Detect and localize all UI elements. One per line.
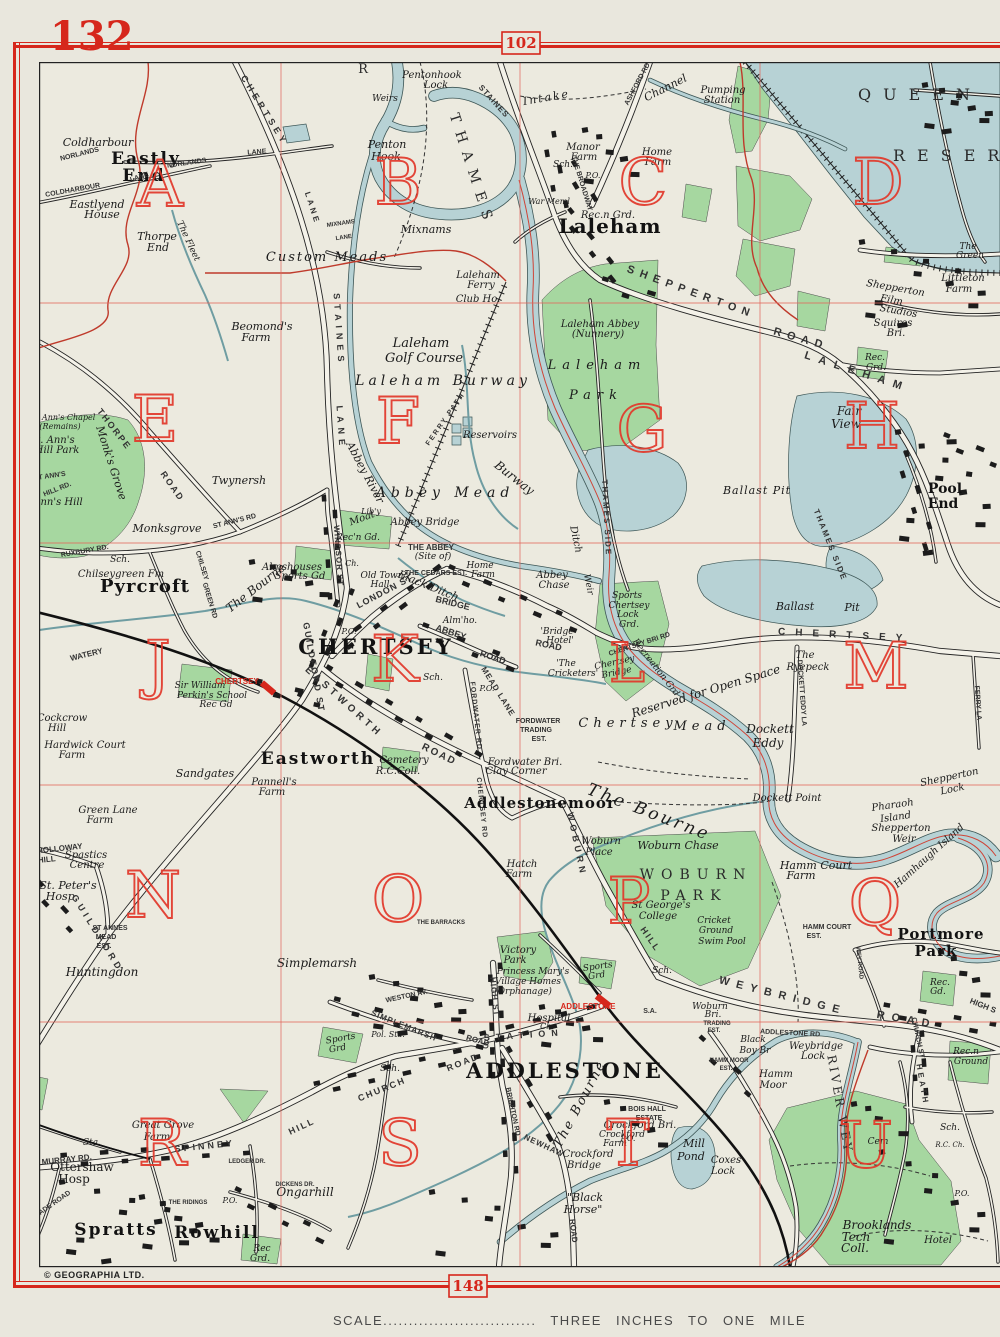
building <box>851 1101 858 1107</box>
building <box>249 559 256 565</box>
grid-letter-t: T <box>607 1107 650 1181</box>
map-label: Pool <box>928 481 962 497</box>
building <box>514 1166 519 1174</box>
lake <box>452 424 461 433</box>
map-label: Mixnams <box>400 223 452 236</box>
map-label: Sandgates <box>176 767 235 780</box>
map-label: TRADING <box>520 727 552 734</box>
building <box>891 249 897 254</box>
map-label: Chase <box>538 580 569 591</box>
building <box>924 1188 932 1194</box>
building <box>979 118 989 123</box>
map-label: Farm <box>258 787 285 798</box>
map-label: Pol. Sta. <box>370 1030 405 1039</box>
building <box>494 1206 500 1211</box>
building <box>980 992 990 997</box>
building <box>906 518 914 523</box>
grid-letter-q: Q <box>849 867 901 941</box>
map-label: Shepperton <box>871 823 930 834</box>
map-label: Hill <box>47 723 66 734</box>
map-label: Coll. <box>841 1241 869 1255</box>
map-label: Weirs <box>372 94 398 104</box>
map-label: Farm <box>86 815 113 826</box>
map-label: P.O. <box>222 1196 238 1205</box>
map-label: Hall <box>370 580 390 590</box>
map-label: HAMM COURT <box>803 924 852 931</box>
map-label: R.C. Ch. <box>934 1141 964 1149</box>
map-label: Huntingdon <box>65 965 139 979</box>
map-label: Park <box>915 942 958 960</box>
map-canvas: 132 102 148 SCALE.......................… <box>0 0 1000 1337</box>
map-label: (Site of) <box>415 551 452 562</box>
map-label: LEDGER DR. <box>228 1159 265 1165</box>
map-label: Woburn <box>581 836 621 847</box>
map-label: Cricketers' <box>548 669 598 679</box>
map-label: Monksgrove <box>132 522 202 535</box>
map-label: Black <box>739 1035 765 1045</box>
map-label: Woburn Chase <box>637 839 719 852</box>
map-label: HILL <box>37 854 56 865</box>
map-label: Sch. <box>652 966 672 976</box>
map-label: Hamm <box>758 1069 793 1080</box>
building <box>596 134 602 139</box>
map-label: Swim Pool <box>698 937 746 947</box>
map-label: Farm <box>58 750 85 761</box>
map-label: Sch. <box>423 673 443 683</box>
map-label: Dockett Point <box>752 793 823 804</box>
map-label: R.C.Coll. <box>375 766 420 777</box>
map-label: Pit <box>843 601 860 614</box>
map-label: Spratts <box>74 1220 157 1240</box>
map-label: Ground <box>699 926 734 936</box>
map-label: Eddy <box>752 736 784 750</box>
building <box>932 1173 938 1178</box>
map-label: Ryepeck <box>786 662 830 673</box>
map-label: Lock <box>710 1166 735 1177</box>
map-label: Sch. <box>380 1064 400 1074</box>
svg-text:102: 102 <box>505 34 536 52</box>
map-label: Bri. <box>704 1010 722 1020</box>
map-label: Village Homes <box>495 977 561 987</box>
grid-letter-a: A <box>136 148 184 222</box>
building <box>202 1153 210 1158</box>
building <box>978 291 986 296</box>
map-label: Littleton <box>940 273 984 284</box>
map-label: Horse" <box>563 1203 603 1216</box>
map-label: Sports Gd <box>275 571 326 582</box>
map-label: EST. <box>720 1066 733 1072</box>
map-label: Ch. <box>345 559 359 568</box>
building <box>966 471 973 477</box>
map-label: THE ABBEY <box>408 543 455 552</box>
map-label: Chertsey <box>578 716 677 731</box>
map-label: Simplemarsh <box>277 956 357 970</box>
map-label: Bri. <box>886 328 906 339</box>
map-label: Station <box>704 95 741 106</box>
map-label: Sch. <box>110 555 130 565</box>
building <box>485 1216 493 1222</box>
map-label: MEAD <box>96 934 117 941</box>
lake <box>452 436 461 445</box>
map-label: Sta. <box>83 1138 101 1148</box>
map-label: S.A. <box>643 1008 657 1015</box>
map-label: Farm <box>570 152 597 163</box>
building <box>905 1161 911 1166</box>
grid-ref-bottom: 148 <box>449 1275 487 1297</box>
map-label: Laleham <box>547 358 647 373</box>
map-label: End <box>928 496 959 512</box>
map-label: Farm <box>505 869 532 880</box>
grid-letter-m: M <box>843 630 909 704</box>
building <box>582 127 589 133</box>
building <box>983 504 991 509</box>
map-label: DICKENS DR. <box>275 1182 314 1188</box>
map-label: Mill <box>682 1137 705 1150</box>
map-label: Grd. <box>619 620 639 630</box>
map-label: Princess Mary's <box>496 967 570 977</box>
copyright: © GEOGRAPHIA LTD. <box>44 1270 145 1280</box>
building <box>859 239 866 245</box>
map-label: P.O. <box>341 627 357 636</box>
map-label: Bridge <box>566 1160 601 1171</box>
building <box>923 259 929 264</box>
map-label: ADDLESTONE <box>465 1058 664 1083</box>
map-label: Clay Corner <box>485 766 547 777</box>
building <box>969 1227 979 1232</box>
map-label: ADDLESTONE <box>561 1002 617 1011</box>
map-label: EST. <box>97 943 112 950</box>
map-label: LANE <box>247 148 267 156</box>
map-label: House <box>83 208 120 221</box>
map-label: Lock <box>423 80 448 91</box>
map-label: Reservoirs <box>462 430 517 441</box>
map-label: Rec <box>252 1244 270 1254</box>
map-label: (Remains) <box>39 422 80 431</box>
map-label: Hotel <box>923 1235 952 1246</box>
map-layers: ColdharbourEastlyEndEastlyendHouseThorpe… <box>20 62 1000 1267</box>
map-label: (Orphanage) <box>494 986 552 997</box>
map-label: HAMM MOOR <box>710 1058 750 1064</box>
map-label: Lock <box>616 610 639 620</box>
map-label: Lib'y <box>360 507 381 516</box>
map-label: Sports <box>612 591 642 601</box>
building <box>913 271 921 277</box>
grid-letter-l: L <box>609 632 645 695</box>
map-label: Mead <box>672 719 730 734</box>
grid-letter-d: D <box>852 146 903 220</box>
map-label: Cricket <box>697 916 731 926</box>
grid-letter-p: P <box>607 865 650 939</box>
building <box>369 974 376 980</box>
building <box>490 1047 495 1055</box>
building <box>919 443 925 448</box>
map-label: CHERTSEY <box>215 677 259 686</box>
grid-letter-k: K <box>371 623 420 697</box>
building <box>429 1189 436 1195</box>
page-number: 132 <box>50 13 134 60</box>
map-label: Grd. <box>250 1254 270 1264</box>
map-label: FORDWATER <box>516 718 561 725</box>
map-label: Rec.n <box>952 1047 979 1057</box>
grid-letter-e: E <box>132 383 179 457</box>
grid-ref-top: 102 <box>502 32 540 54</box>
building <box>458 1009 466 1014</box>
map-label: Portmore <box>897 925 984 943</box>
building <box>174 1216 182 1222</box>
map-label: EST. <box>708 1028 721 1034</box>
grid-letter-h: H <box>844 390 900 464</box>
map-label: Cemetery <box>379 755 429 766</box>
map-label: THE RIDINGS <box>169 1200 208 1206</box>
map-label: Pyrcroft <box>100 576 190 597</box>
building <box>320 592 330 597</box>
building <box>968 303 978 308</box>
map-label: Laleham <box>392 336 450 351</box>
building <box>911 1045 916 1053</box>
map-label: Coxes <box>711 1155 741 1166</box>
map-label: Ground <box>954 1057 989 1067</box>
building <box>539 1004 546 1010</box>
building <box>393 981 399 986</box>
map-label: Sch. <box>553 160 573 170</box>
building <box>942 457 948 462</box>
map-label: Park <box>502 955 526 966</box>
map-label: Ballast Pit <box>722 484 791 497</box>
building <box>898 1131 908 1136</box>
map-label: Custom Meads <box>266 250 388 265</box>
map-label: Gd. <box>930 987 946 997</box>
map-label: Farm <box>945 284 972 295</box>
map-label: War Meml <box>528 197 570 206</box>
building <box>122 1159 129 1164</box>
map-label: Hosp <box>58 1172 90 1186</box>
building <box>604 1099 611 1105</box>
map-label: P.O. <box>585 171 601 180</box>
building <box>139 1194 146 1200</box>
building <box>462 1197 468 1202</box>
map-label: Rec. <box>864 353 885 363</box>
grid-letter-s: S <box>378 1107 422 1181</box>
building <box>322 495 327 502</box>
map-label: ST ANNES <box>92 925 127 932</box>
building <box>94 1189 100 1194</box>
map-label: Ballast <box>775 600 815 613</box>
building <box>977 1212 985 1217</box>
map-label: Boy Br <box>739 1046 772 1056</box>
map-label: Park <box>568 388 623 403</box>
building <box>658 1142 668 1147</box>
map-label: (Nunnery) <box>572 329 624 340</box>
grid-letter-o: O <box>372 863 424 937</box>
map-label: Farm <box>240 331 270 344</box>
map-label: Pond <box>676 1150 705 1163</box>
building <box>119 1210 127 1216</box>
building <box>489 1022 494 1031</box>
map-label: Green <box>956 251 984 261</box>
map-label: Coldharbour <box>63 136 134 149</box>
svg-text:148: 148 <box>452 1277 483 1295</box>
grid-letter-u: U <box>839 1109 893 1183</box>
map-label: Moor <box>758 1080 787 1091</box>
map-label: EST. <box>807 933 822 940</box>
building <box>593 1037 603 1042</box>
map-label: Sch. <box>940 1123 960 1133</box>
building <box>503 1150 508 1157</box>
building <box>975 522 985 527</box>
lake <box>463 417 472 426</box>
map-label: Eastworth <box>261 749 376 769</box>
map-label: Rec'n Gd. <box>335 533 380 543</box>
grid-letter-n: N <box>125 859 181 933</box>
map-label: St Ann's Chapel <box>31 413 96 422</box>
building <box>550 1232 558 1237</box>
map-label: Alm'ho. <box>442 616 477 626</box>
map-label: Hill Park <box>34 445 80 456</box>
atlas-page: 132 102 148 SCALE.......................… <box>0 0 1000 1337</box>
grid-letter-f: F <box>376 385 420 459</box>
map-label: Abbey Bridge <box>390 517 460 528</box>
map-label: Farm <box>785 869 815 882</box>
map-label: Farm <box>470 570 495 580</box>
map-label: QUEEN <box>858 85 982 104</box>
map-label: P.O. <box>954 1189 970 1198</box>
building <box>606 149 614 155</box>
map-label: RESERVOIR <box>893 146 1000 165</box>
map-label: WOBURN <box>640 867 753 883</box>
map-label: Twynersh <box>212 474 266 487</box>
building <box>326 559 331 568</box>
map-label: Hotel' <box>545 636 574 646</box>
building <box>100 1150 109 1155</box>
building <box>985 111 993 116</box>
map-label: End <box>146 241 169 254</box>
building <box>243 1151 250 1156</box>
building <box>501 1117 506 1125</box>
map-label: EST. <box>532 736 547 743</box>
grid-letter-g: G <box>616 393 667 467</box>
map-label: P.O. <box>479 684 495 693</box>
grid-letter-r: R <box>138 1107 188 1181</box>
map-label: Golf Course <box>385 351 463 366</box>
map-label: Lock <box>800 1051 825 1062</box>
map-label: Rec Gd <box>199 700 233 710</box>
map-label: Abbey Mead <box>374 485 515 501</box>
map-label: Club Ho. <box>456 294 501 305</box>
grid-letter-c: C <box>619 146 668 220</box>
building <box>160 1201 166 1206</box>
map-label: Dockett <box>745 722 794 736</box>
building <box>332 510 337 519</box>
map-label: Ferry <box>466 280 495 291</box>
building <box>947 439 957 444</box>
building <box>324 527 329 535</box>
map-label: Place <box>584 847 612 858</box>
grid-letter-b: B <box>374 146 421 220</box>
building <box>959 971 967 977</box>
building <box>541 1243 551 1248</box>
map-label: Weir <box>892 834 917 845</box>
building <box>129 1198 135 1203</box>
map-label: Rowhill <box>174 1223 260 1243</box>
building <box>164 1207 171 1213</box>
map-label: TRADING <box>703 1021 731 1027</box>
map-label: R <box>358 62 369 77</box>
map-label: Centre <box>70 860 105 871</box>
scale-text: SCALE.............................. THRE… <box>333 1313 806 1328</box>
map-label: 'The <box>556 659 576 669</box>
